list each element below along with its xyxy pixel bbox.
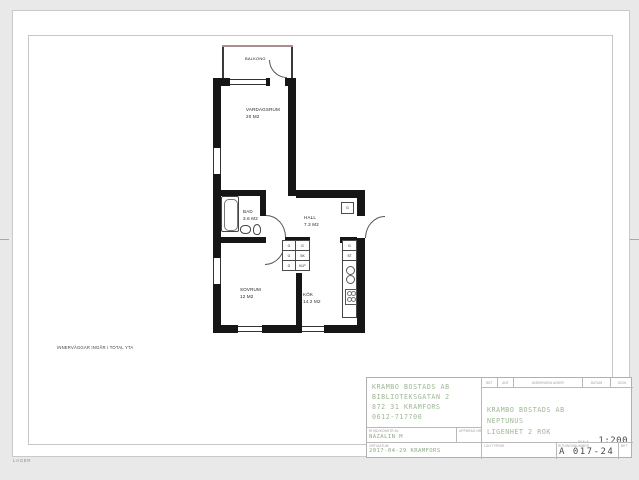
window: [213, 258, 221, 284]
project-object: LIGENHET 2 ROK: [487, 427, 565, 438]
room-area: 7.3 M2: [304, 222, 319, 229]
rev-col-label: BET: [486, 381, 493, 385]
wall-segment: [213, 78, 221, 148]
balcony-wall-left: [222, 45, 224, 78]
wall-segment: [221, 237, 265, 243]
window: [230, 79, 266, 85]
balcony-wall-right: [291, 45, 293, 78]
wall-segment: [266, 78, 270, 86]
wall-segment: [213, 174, 221, 258]
window: [302, 326, 324, 332]
drawn-by-value: NAZALIN M: [369, 434, 403, 440]
window: [238, 326, 262, 332]
wall-segment: [288, 78, 296, 196]
divider: [482, 442, 633, 443]
title-block: KRAMBO BOSTADS AB BIBLIOTEKSGATAN 2 872 …: [366, 377, 632, 458]
closet-label: G: [288, 254, 291, 258]
bet-label: BET: [621, 444, 628, 448]
closet-label: ST: [347, 254, 351, 258]
ref-edge-label: REF: [0, 441, 1, 448]
room-area: 14.2 M2: [303, 299, 321, 306]
balcony-railing: [222, 45, 293, 47]
divider: [481, 378, 482, 459]
washbasin: [240, 225, 251, 234]
project-company: KRAMBO BOSTADS AB: [487, 405, 565, 416]
room-name: BALKONG: [245, 56, 266, 62]
closet-label: G: [348, 244, 351, 248]
closet-klp: KLP: [295, 260, 310, 271]
assignment-label: UPPDRAG NR: [459, 429, 481, 433]
project-name: NEPTUNUS: [487, 416, 565, 427]
centering-tick-right: [630, 239, 639, 240]
wall-segment: [262, 325, 302, 333]
rev-col-bet: BET: [482, 378, 498, 388]
kitchen-counter: [342, 260, 357, 318]
room-area: 20 M2: [246, 114, 280, 121]
room-label-balkong: BALKONG: [245, 56, 266, 62]
project-title: KRAMBO BOSTADS AB NEPTUNUS LIGENHET 2 RO…: [487, 405, 565, 438]
room-area: 12 M2: [240, 294, 261, 301]
room-label-sovrum: SOVRUM 12 M2: [240, 287, 261, 300]
drawing-number-value: A 017-24: [559, 447, 614, 457]
rev-col-sign: SIGN: [611, 378, 633, 388]
wall-segment: [296, 190, 364, 198]
divider: [556, 442, 557, 459]
place-date-value: 2017-04-29 KRAMFORS: [369, 448, 441, 454]
bathtub: [221, 196, 239, 232]
rev-col-label: DATUM: [591, 381, 603, 385]
sink-bowl: [346, 266, 355, 275]
divider: [367, 427, 481, 428]
room-name: SOVRUM: [240, 287, 261, 294]
drawing-canvas: REF LAGER: [0, 0, 639, 480]
revision-header-row: BET ANT ÄNDRINGEN AVSER DATUM SIGN: [482, 378, 633, 388]
closet-label: SK: [300, 254, 305, 258]
wall-segment: [296, 273, 302, 325]
rev-col-ant: ANT: [498, 378, 514, 388]
wall-segment: [213, 78, 230, 86]
company-phone: 0612-717700: [372, 412, 450, 422]
closet-g: G: [282, 260, 296, 271]
wall-segment: [213, 325, 238, 333]
closet-label: G: [346, 206, 349, 210]
closet-label: G: [288, 244, 291, 248]
drawn-by-label: RITAD/KONSTR AV: [369, 429, 399, 433]
wall-segment: [260, 196, 266, 216]
company-street: BIBLIOTEKSGATAN 2: [372, 392, 450, 402]
wall-segment: [324, 325, 365, 333]
centering-tick-left: [0, 239, 9, 240]
rev-col-label: ÄNDRINGEN AVSER: [532, 381, 564, 385]
divider: [367, 442, 481, 443]
closet-g: G: [341, 202, 354, 214]
sink-bowl: [346, 275, 355, 284]
plan-footnote: INNERVÄGGAR INGÅR I TOTAL YTA: [57, 345, 133, 350]
closet-label: KLP: [299, 264, 305, 268]
rev-col-datum: DATUM: [583, 378, 611, 388]
toilet: [253, 224, 261, 235]
room-area: 3.6 M2: [243, 216, 258, 223]
closet-label: G: [301, 244, 304, 248]
wall-segment: [357, 190, 365, 216]
room-name: VARDAGSRUM: [246, 107, 280, 114]
wall-segment: [213, 190, 266, 196]
company-postal: 872 31 KRAMFORS: [372, 402, 450, 412]
rev-col-label: ANT: [502, 381, 509, 385]
room-label-vardagsrum: VARDAGSRUM 20 M2: [246, 107, 280, 120]
lager-label: LAGER: [13, 458, 31, 463]
room-label-hall: HALL 7.3 M2: [304, 215, 319, 228]
room-label-kok: KÖK 14.2 M2: [303, 292, 321, 305]
room-label-bad: BAD 3.6 M2: [243, 209, 258, 222]
rev-col-andringen: ÄNDRINGEN AVSER: [514, 378, 583, 388]
company-name: KRAMBO BOSTADS AB: [372, 382, 450, 392]
window: [213, 148, 221, 174]
closet-label: G: [288, 264, 291, 268]
wall-segment: [357, 238, 365, 333]
divider: [456, 427, 457, 442]
stove: [345, 289, 357, 305]
company-address: KRAMBO BOSTADS AB BIBLIOTEKSGATAN 2 872 …: [372, 382, 450, 422]
divider: [618, 442, 619, 459]
rev-col-label: SIGN: [618, 381, 626, 385]
type-label: LGH TYP/NR: [484, 444, 504, 448]
